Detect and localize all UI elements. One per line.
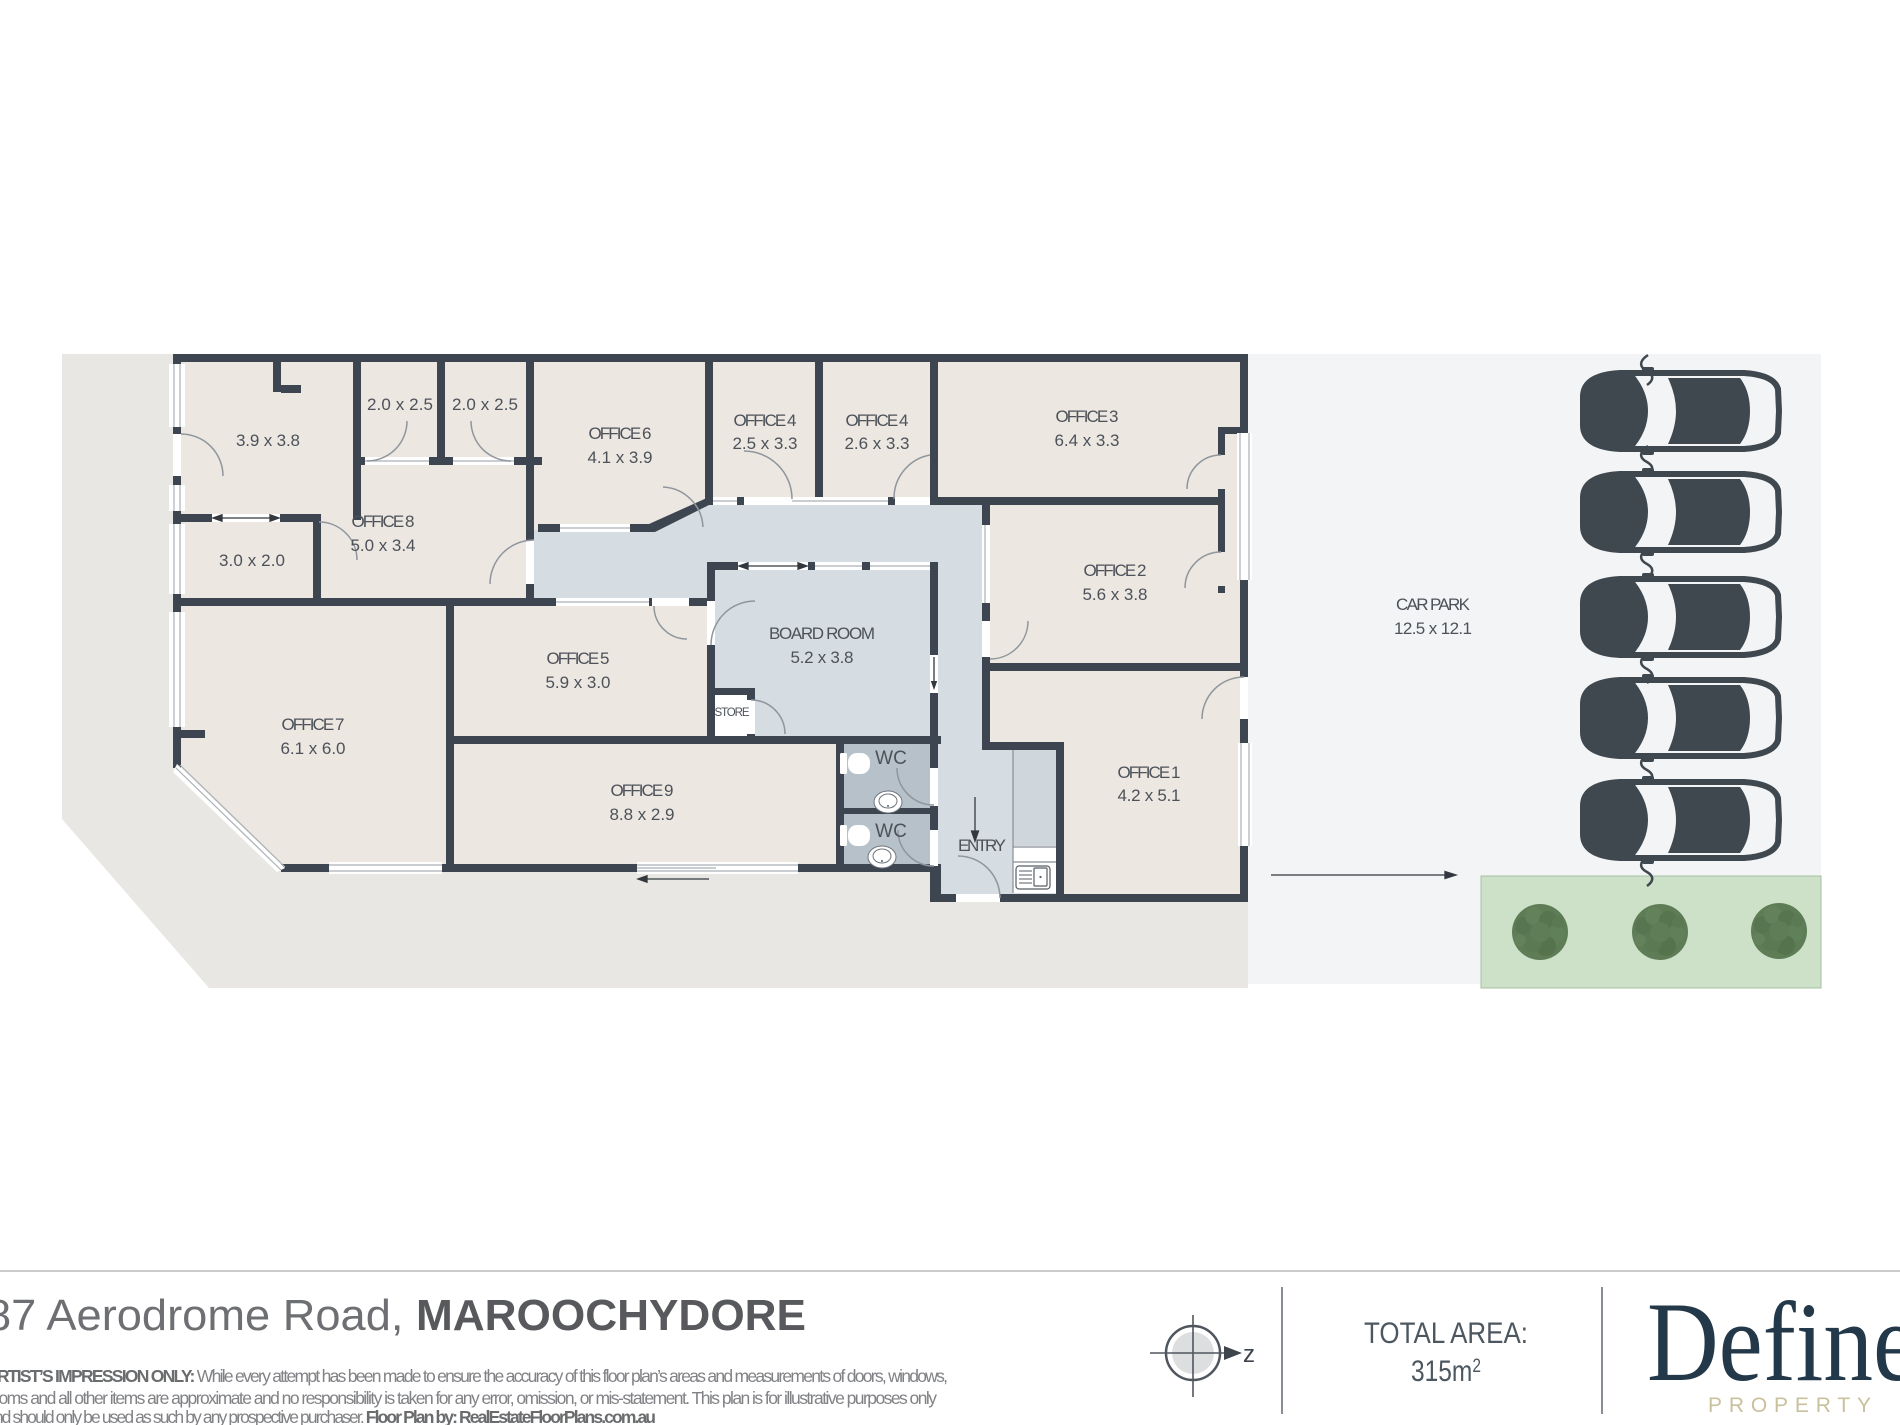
svg-text:87 Aerodrome Road,: 87 Aerodrome Road, <box>0 1291 416 1340</box>
svg-text:WC: WC <box>875 821 907 842</box>
svg-text:and should only be used as suc: and should only be used as such by any p… <box>0 1407 656 1425</box>
svg-text:5.6 x 3.8: 5.6 x 3.8 <box>1083 585 1148 604</box>
svg-text:5.2 x 3.8: 5.2 x 3.8 <box>791 648 854 667</box>
svg-text:5.0 x 3.4: 5.0 x 3.4 <box>351 536 416 555</box>
svg-text:ENTRY: ENTRY <box>958 836 1006 855</box>
svg-text:OFFICE 2: OFFICE 2 <box>1084 561 1147 580</box>
svg-text:6.1 x 6.0: 6.1 x 6.0 <box>281 739 346 758</box>
svg-text:4.1 x 3.9: 4.1 x 3.9 <box>588 448 653 467</box>
svg-text:OFFICE 8: OFFICE 8 <box>352 512 415 531</box>
svg-text:PROPERTY: PROPERTY <box>1708 1394 1884 1417</box>
svg-text:ARTIST’S IMPRESSION ONLY: Whil: ARTIST’S IMPRESSION ONLY: While every at… <box>0 1366 948 1386</box>
svg-text:STORE: STORE <box>715 707 750 719</box>
svg-text:OFFICE 5: OFFICE 5 <box>547 649 610 668</box>
svg-text:2.6 x 3.3: 2.6 x 3.3 <box>845 434 910 453</box>
svg-text:3.9 x 3.8: 3.9 x 3.8 <box>236 431 300 450</box>
svg-text:OFFICE 3: OFFICE 3 <box>1056 407 1119 426</box>
svg-text:CAR PARK: CAR PARK <box>1396 595 1471 614</box>
svg-text:2.0 x 2.5: 2.0 x 2.5 <box>452 395 518 414</box>
svg-text:WC: WC <box>875 748 907 769</box>
svg-text:2.0 x 2.5: 2.0 x 2.5 <box>367 395 433 414</box>
svg-text:OFFICE 6: OFFICE 6 <box>589 424 652 443</box>
svg-text:315m2: 315m2 <box>1411 1355 1481 1388</box>
svg-text:TOTAL AREA:: TOTAL AREA: <box>1364 1317 1528 1350</box>
svg-text:5.9 x 3.0: 5.9 x 3.0 <box>546 673 611 692</box>
svg-text:z: z <box>1243 1341 1255 1368</box>
svg-text:12.5 x 12.1: 12.5 x 12.1 <box>1394 619 1472 638</box>
svg-text:OFFICE 1: OFFICE 1 <box>1118 763 1181 782</box>
svg-text:8.8 x 2.9: 8.8 x 2.9 <box>610 805 675 824</box>
svg-text:4.2 x 5.1: 4.2 x 5.1 <box>1118 786 1181 805</box>
svg-text:OFFICE 4: OFFICE 4 <box>846 411 909 430</box>
svg-text:OFFICE 7: OFFICE 7 <box>282 715 345 734</box>
svg-text:OFFICE 9: OFFICE 9 <box>611 781 674 800</box>
svg-text:rooms and all other items are: rooms and all other items are approximat… <box>0 1388 937 1408</box>
svg-text:MAROOCHYDORE: MAROOCHYDORE <box>416 1291 806 1340</box>
svg-text:6.4 x 3.3: 6.4 x 3.3 <box>1055 431 1120 450</box>
svg-text:OFFICE 4: OFFICE 4 <box>734 411 797 430</box>
svg-text:Define: Define <box>1647 1280 1900 1405</box>
svg-text:2.5 x 3.3: 2.5 x 3.3 <box>733 434 798 453</box>
svg-text:BOARD ROOM: BOARD ROOM <box>769 624 875 643</box>
svg-text:3.0 x 2.0: 3.0 x 2.0 <box>219 551 285 570</box>
